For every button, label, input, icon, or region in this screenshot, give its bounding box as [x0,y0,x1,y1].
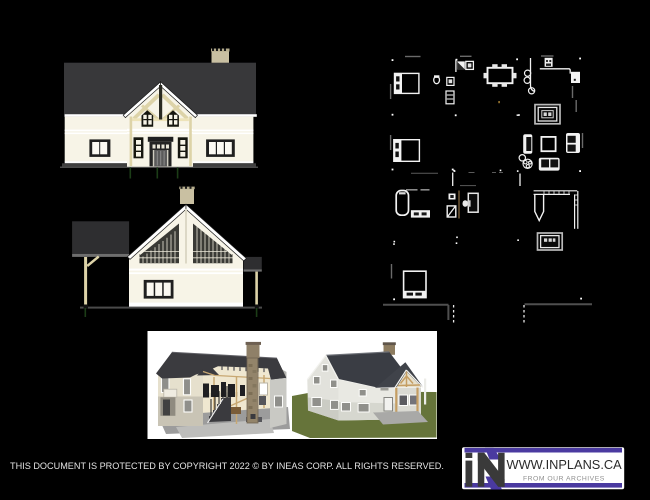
svg-text:FROM OUR ARCHIVES: FROM OUR ARCHIVES [523,475,605,482]
svg-text:THIS DOCUMENT IS PROTECTED BY: THIS DOCUMENT IS PROTECTED BY COPYRIGHT … [10,461,444,471]
svg-text:WWW.INPLANS.CA: WWW.INPLANS.CA [507,457,623,472]
